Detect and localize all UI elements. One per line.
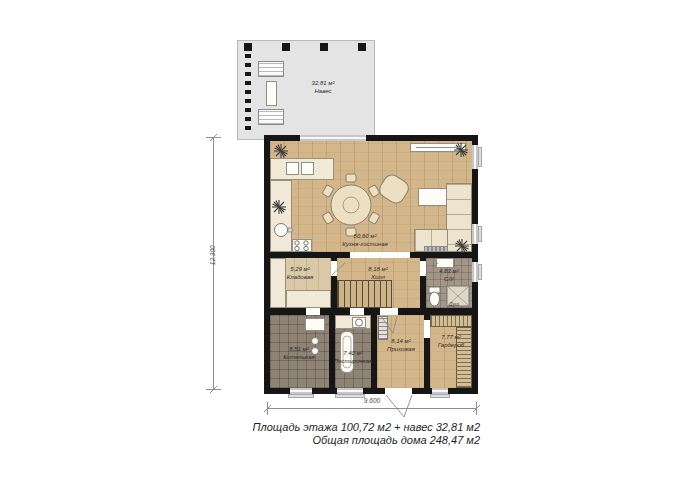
sill-right-1 [478,147,482,167]
wc-name-text: С/У [424,276,474,284]
wardrobe-area-text: 7,77 м² [428,334,474,342]
door-hall-entry [380,308,398,315]
sofa-vertical [446,183,472,252]
kitchen-cabinet-1 [286,162,299,175]
canopy-posts-top [244,43,368,51]
wc-area-text: 4,83 м² [424,268,474,276]
label-laundry: 7,40 м² Постирочная [330,350,376,365]
boiler-area-text: 8,51 м² [270,346,328,354]
summary-line-1: Площадь этажа 100,72 м2 + навес 32,81 м2 [253,421,480,434]
canopy-posts-left [245,45,251,131]
doormat [424,246,448,252]
door-storage [331,261,337,276]
boiler [305,318,325,331]
canopy-label: 32,81 м² Навес [298,80,348,95]
canopy-area-text: 32,81 м² [298,80,348,88]
entry-bench [378,316,388,340]
sill-boiler [288,394,314,398]
washing-machine [352,317,366,328]
storage-shelf-bottom [286,290,331,308]
door-boiler [306,308,320,315]
door-laundry [350,308,364,315]
wardrobe-shelf-top [430,315,472,327]
boiler-name-text: Котельная [270,354,328,362]
canopy-bench-bottom [258,109,284,125]
label-storage: 5,29 м² Кладовая [272,266,328,281]
window-top [300,135,366,141]
canopy-table [266,81,277,106]
area-summary: Площадь этажа 100,72 м2 + навес 32,81 м2… [253,421,480,447]
sill-wardrobe [430,394,450,398]
label-kitchen-living: 50,60 м² Кухня-гостиная [320,233,410,248]
label-hall: 8,18 м² Холл [352,266,404,281]
dimension-horizontal: 9.600 [350,398,394,405]
stairs [337,280,392,308]
shower-label: Душ [449,302,459,307]
laundry-area-text: 7,40 м² [330,350,376,358]
dimension-vertical: 12.300 [210,235,217,275]
tv-stand [410,143,466,152]
kitchen-area-text: 50,60 м² [320,233,410,241]
label-entry: 8,14 м² Прихожая [378,338,424,353]
label-wc: 4,83 м² С/У [424,268,474,283]
entry-area-text: 8,14 м² [378,338,424,346]
entrance-door [385,388,412,394]
floor-plan-canvas: 32,81 м² Навес [0,0,679,480]
canopy-name-text: Навес [298,88,348,96]
label-wardrobe: 7,77 м² Гардероб [428,334,474,349]
kitchen-counter-left [270,180,292,252]
wardrobe-name-text: Гардероб [428,342,474,350]
kitchen-cabinet-2 [301,162,314,175]
opening-kitchen-hall [350,252,410,258]
laundry-name-text: Постирочная [330,358,376,366]
hall-name-text: Холл [352,274,404,282]
label-boiler: 8,51 м² Котельная [270,346,328,361]
wash-basin [436,258,454,268]
sill-right-3 [478,264,482,280]
hall-area-text: 8,18 м² [352,266,404,274]
canopy-bench-top [258,61,284,77]
summary-line-2: Общая площадь дома 248,47 м2 [253,434,480,447]
entry-name-text: Прихожая [378,346,424,354]
stove [292,239,312,252]
storage-name-text: Кладовая [272,274,328,282]
sill-right-2 [478,226,482,242]
kitchen-name-text: Кухня-гостиная [320,241,410,249]
storage-area-text: 5,29 м² [272,266,328,274]
